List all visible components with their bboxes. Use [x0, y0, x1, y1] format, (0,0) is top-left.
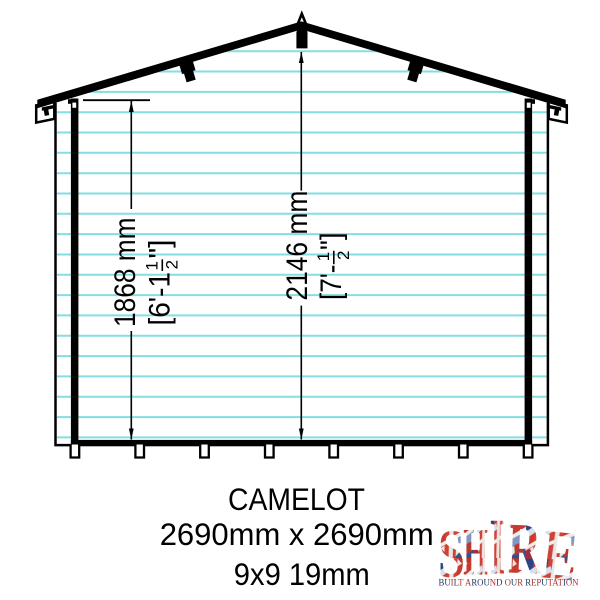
- svg-text:1868 mm: 1868 mm: [109, 218, 142, 328]
- svg-text:"]: "]: [144, 240, 177, 259]
- svg-text:1: 1: [143, 261, 162, 270]
- svg-text:1: 1: [314, 252, 333, 261]
- svg-text:CAMELOT: CAMELOT: [228, 481, 365, 517]
- svg-text:2690mm x 2690mm: 2690mm x 2690mm: [160, 516, 434, 552]
- svg-text:"]: "]: [315, 233, 348, 251]
- svg-text:[7'-: [7'-: [315, 265, 348, 301]
- svg-text:2: 2: [334, 251, 353, 260]
- svg-text:2: 2: [162, 260, 181, 269]
- svg-text:[6'-1: [6'-1: [144, 272, 177, 326]
- svg-text:9x9 19mm: 9x9 19mm: [234, 556, 370, 592]
- svg-text:2146 mm: 2146 mm: [281, 191, 314, 301]
- svg-text:BUILT AROUND OUR REPUTATION: BUILT AROUND OUR REPUTATION: [439, 578, 579, 589]
